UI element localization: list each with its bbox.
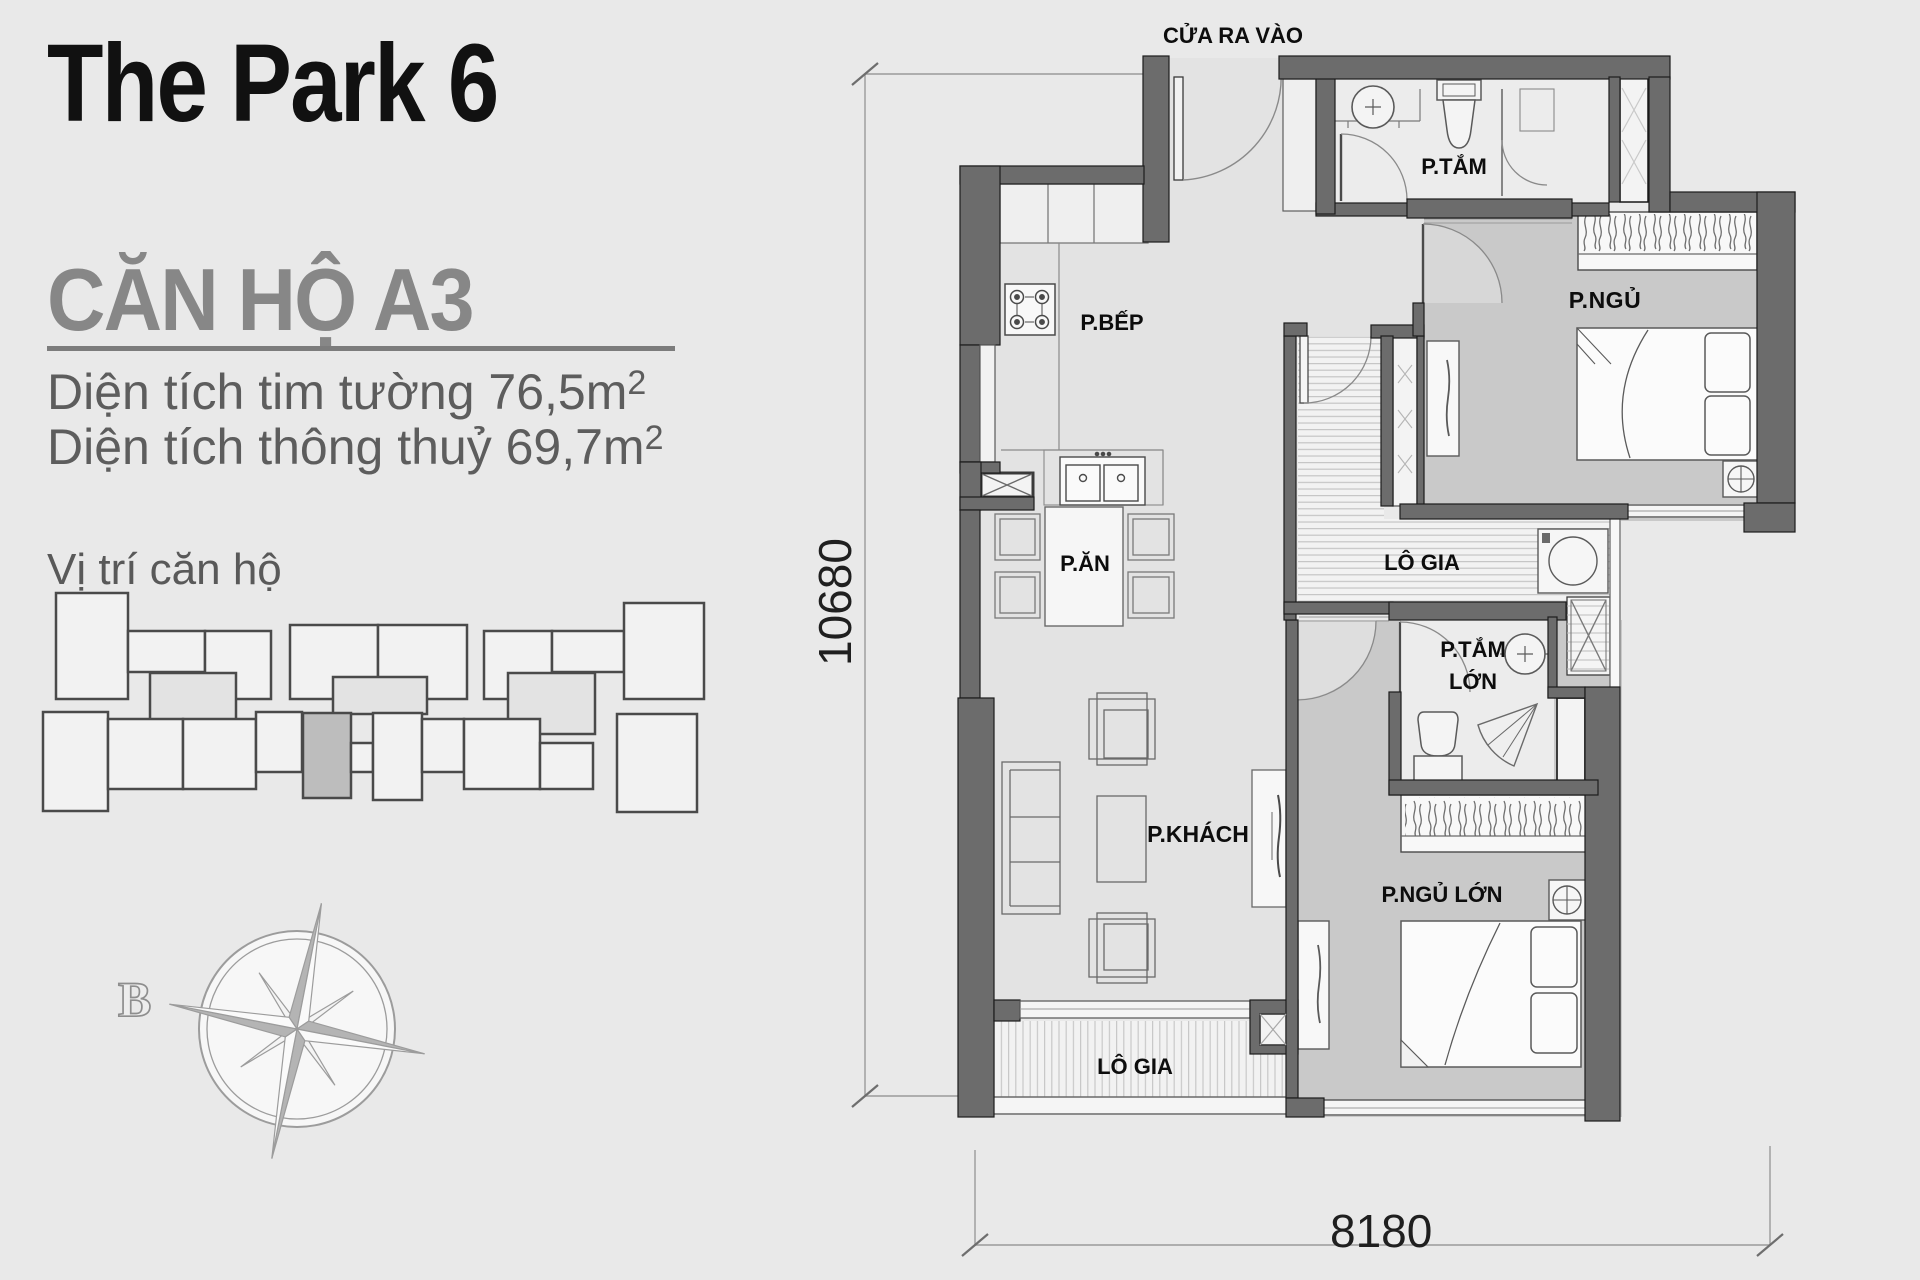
- svg-text:LỚN: LỚN: [1449, 669, 1497, 694]
- svg-text:P.KHÁCH: P.KHÁCH: [1147, 820, 1249, 847]
- svg-text:10680: 10680: [809, 538, 861, 666]
- svg-text:P.TẮM: P.TẮM: [1421, 154, 1487, 179]
- svg-text:CĂN HỘ A3: CĂN HỘ A3: [47, 250, 473, 349]
- svg-text:CỬA RA VÀO: CỬA RA VÀO: [1163, 23, 1303, 48]
- svg-text:P.NGỦ: P.NGỦ: [1569, 285, 1641, 313]
- svg-text:P.NGỦ LỚN: P.NGỦ LỚN: [1381, 882, 1502, 907]
- svg-text:P.BẾP: P.BẾP: [1080, 310, 1143, 335]
- svg-text:Diện tích thông thuỷ 69,7m2: Diện tích thông thuỷ 69,7m2: [47, 419, 664, 475]
- svg-text:LÔ GIA: LÔ GIA: [1384, 550, 1460, 575]
- svg-text:Diện tích tim tường 76,5m2: Diện tích tim tường 76,5m2: [47, 364, 646, 420]
- svg-text:P.TẮM: P.TẮM: [1440, 637, 1506, 662]
- svg-text:Vị trí căn hộ: Vị trí căn hộ: [47, 545, 282, 594]
- svg-text:LÔ GIA: LÔ GIA: [1097, 1054, 1173, 1079]
- svg-text:8180: 8180: [1330, 1205, 1432, 1257]
- svg-text:B: B: [118, 971, 151, 1027]
- svg-text:P.ĂN: P.ĂN: [1060, 551, 1110, 576]
- svg-text:The Park 6: The Park 6: [47, 21, 498, 144]
